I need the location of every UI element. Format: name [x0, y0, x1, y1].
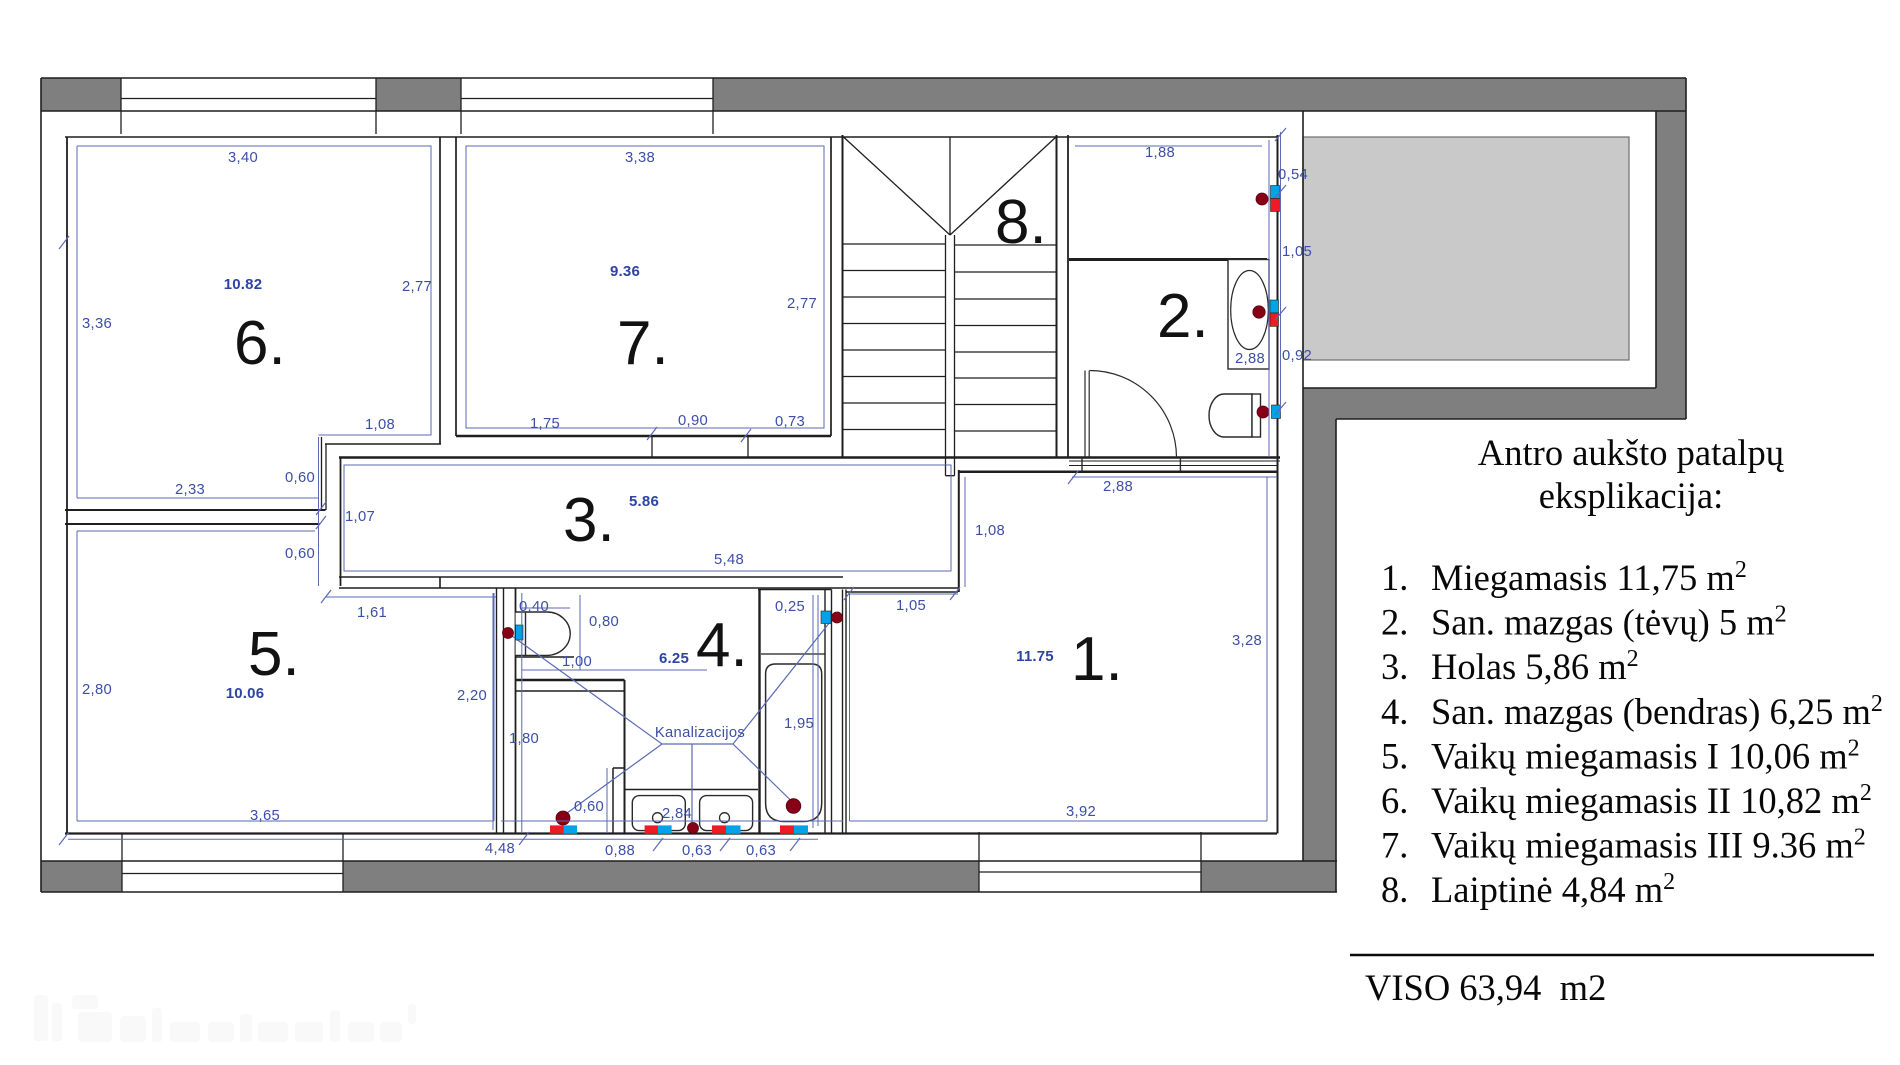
svg-text:0,63: 0,63	[682, 843, 712, 859]
svg-text:Vaikų miegamasis II 10,82 m2: Vaikų miegamasis II 10,82 m2	[1431, 780, 1872, 821]
svg-text:0,63: 0,63	[746, 843, 776, 859]
svg-text:2,20: 2,20	[457, 688, 487, 704]
svg-text:Miegamasis 11,75 m2: Miegamasis 11,75 m2	[1431, 557, 1747, 598]
svg-text:Kanalizacijos: Kanalizacijos	[655, 725, 745, 741]
svg-text:11.75: 11.75	[1016, 648, 1054, 665]
svg-text:2,33: 2,33	[175, 482, 205, 498]
svg-text:San. mazgas (tėvų) 5 m2: San. mazgas (tėvų) 5 m2	[1431, 602, 1787, 643]
svg-text:3.: 3.	[1381, 646, 1408, 687]
svg-text:2.: 2.	[1381, 602, 1408, 643]
svg-text:1,08: 1,08	[365, 417, 395, 433]
svg-text:3,40: 3,40	[228, 150, 258, 166]
svg-text:VISO 63,94 m2: VISO 63,94 m2	[1365, 967, 1606, 1008]
svg-text:5.86: 5.86	[629, 493, 659, 510]
svg-text:Vaikų miegamasis III 9.36 m2: Vaikų miegamasis III 9.36 m2	[1431, 825, 1866, 866]
svg-text:3,28: 3,28	[1232, 633, 1262, 649]
svg-text:Laiptinė 4,84 m2: Laiptinė 4,84 m2	[1431, 869, 1675, 910]
svg-text:1,05: 1,05	[1282, 244, 1312, 260]
svg-text:6.25: 6.25	[659, 650, 689, 667]
svg-text:5,48: 5,48	[714, 552, 744, 568]
svg-text:2,80: 2,80	[82, 682, 112, 698]
svg-text:7.: 7.	[1381, 825, 1408, 866]
svg-text:3.: 3.	[563, 486, 615, 555]
svg-text:Antro aukšto patalpų: Antro aukšto patalpų	[1478, 432, 1785, 473]
svg-text:6.: 6.	[234, 309, 286, 378]
svg-text:9.36: 9.36	[610, 263, 640, 280]
svg-text:0,25: 0,25	[775, 599, 805, 615]
svg-text:5.: 5.	[1381, 735, 1408, 776]
svg-text:2,88: 2,88	[1103, 479, 1133, 495]
svg-text:6.: 6.	[1381, 780, 1408, 821]
svg-text:1,80: 1,80	[509, 731, 539, 747]
svg-text:2,77: 2,77	[402, 279, 432, 295]
svg-text:2.: 2.	[1157, 282, 1209, 351]
svg-text:0,60: 0,60	[574, 799, 604, 815]
svg-text:1,88: 1,88	[1145, 145, 1175, 161]
svg-text:Vaikų miegamasis I 10,06 m2: Vaikų miegamasis I 10,06 m2	[1431, 735, 1860, 776]
svg-text:0,90: 0,90	[678, 413, 708, 429]
svg-text:eksplikacija:: eksplikacija:	[1539, 475, 1723, 516]
svg-text:1.: 1.	[1381, 557, 1408, 598]
svg-text:3,65: 3,65	[250, 808, 280, 824]
svg-text:2,88: 2,88	[1235, 351, 1265, 367]
svg-text:8.: 8.	[995, 188, 1047, 257]
svg-text:3,38: 3,38	[625, 150, 655, 166]
svg-text:4.: 4.	[1381, 691, 1408, 732]
svg-text:8.: 8.	[1381, 869, 1408, 910]
svg-text:0,60: 0,60	[285, 546, 315, 562]
svg-text:0,92: 0,92	[1282, 348, 1312, 364]
svg-text:5.: 5.	[248, 620, 300, 689]
svg-text:1,07: 1,07	[345, 509, 375, 525]
svg-text:4.: 4.	[696, 611, 748, 680]
svg-text:10.82: 10.82	[224, 276, 263, 293]
svg-text:0,88: 0,88	[605, 843, 635, 859]
svg-text:San. mazgas (bendras) 6,25 m2: San. mazgas (bendras) 6,25 m2	[1431, 691, 1883, 732]
svg-text:1,00: 1,00	[562, 654, 592, 670]
svg-text:7.: 7.	[617, 309, 669, 378]
svg-text:1,95: 1,95	[784, 716, 814, 732]
svg-text:1.: 1.	[1071, 625, 1123, 694]
svg-text:3,36: 3,36	[82, 316, 112, 332]
svg-text:4,48: 4,48	[485, 841, 515, 857]
svg-text:1,08: 1,08	[975, 523, 1005, 539]
svg-text:0,73: 0,73	[775, 414, 805, 430]
svg-text:2,84: 2,84	[662, 806, 692, 822]
svg-text:0,54: 0,54	[1278, 167, 1308, 183]
svg-text:1,75: 1,75	[530, 416, 560, 432]
svg-text:3,92: 3,92	[1066, 804, 1096, 820]
svg-text:Holas 5,86 m2: Holas 5,86 m2	[1431, 646, 1639, 687]
svg-text:1,05: 1,05	[896, 598, 926, 614]
svg-text:0,80: 0,80	[589, 614, 619, 630]
svg-text:0,40: 0,40	[519, 599, 549, 615]
svg-text:1,61: 1,61	[357, 605, 387, 621]
svg-text:2,77: 2,77	[787, 296, 817, 312]
svg-text:0,60: 0,60	[285, 470, 315, 486]
